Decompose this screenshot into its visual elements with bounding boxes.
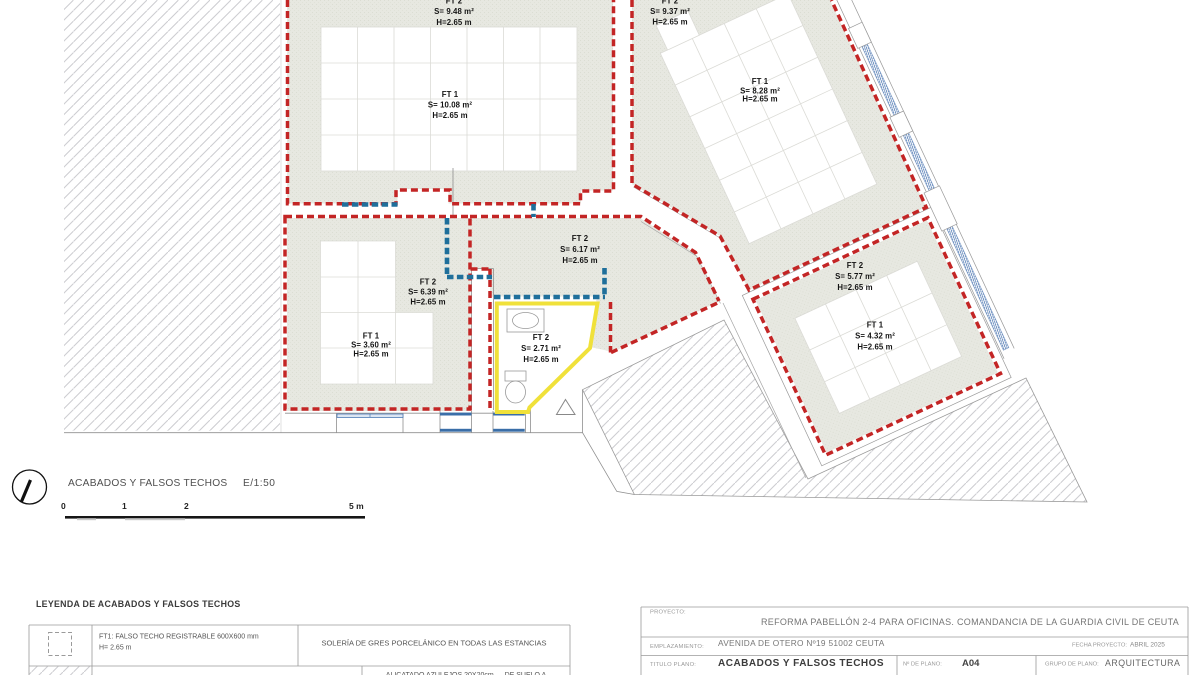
svg-text:H=2.65 m: H=2.65 m (436, 18, 471, 27)
svg-text:ARQUITECTURA: ARQUITECTURA (1105, 658, 1180, 668)
svg-text:A04: A04 (962, 658, 980, 669)
svg-text:FT 2: FT 2 (572, 234, 589, 243)
svg-text:H=2.65 m: H=2.65 m (857, 343, 892, 352)
svg-text:S= 9.37 m²: S= 9.37 m² (650, 7, 690, 16)
svg-text:AVENIDA DE OTERO Nº19 51002 C: AVENIDA DE OTERO Nº19 51002 CEUTA (718, 638, 885, 648)
svg-text:ACABADOS Y FALSOS TECHOS: ACABADOS Y FALSOS TECHOS (68, 478, 227, 489)
svg-text:FECHA PROYECTO:: FECHA PROYECTO: (1072, 643, 1127, 649)
svg-text:S= 2.71 m²: S= 2.71 m² (521, 344, 561, 353)
svg-text:FT 2: FT 2 (533, 333, 550, 342)
svg-text:H=2.65 m: H=2.65 m (410, 298, 445, 307)
svg-text:S= 6.39 m²: S= 6.39 m² (408, 288, 448, 297)
svg-text:2: 2 (184, 501, 189, 511)
svg-text:1: 1 (122, 501, 127, 511)
svg-text:FT 2: FT 2 (847, 261, 864, 270)
svg-text:S= 10.08 m²: S= 10.08 m² (428, 101, 473, 110)
svg-text:FT1: FALSO TECHO REGISTRABLE 6: FT1: FALSO TECHO REGISTRABLE 600X600 mm (99, 634, 259, 641)
svg-text:S= 6.17 m²: S= 6.17 m² (560, 245, 600, 254)
svg-text:S= 9.48 m²: S= 9.48 m² (434, 7, 474, 16)
svg-text:H= 2.65 m: H= 2.65 m (99, 645, 132, 652)
svg-text:REFORMA PABELLÓN 2-4 PARA OFIC: REFORMA PABELLÓN 2-4 PARA OFICINAS. COMA… (761, 617, 1179, 627)
svg-text:S= 3.60 m²: S= 3.60 m² (351, 341, 391, 350)
svg-text:ACABADOS Y FALSOS TECHOS: ACABADOS Y FALSOS TECHOS (718, 658, 884, 669)
svg-text:H=2.65 m: H=2.65 m (353, 350, 388, 359)
svg-text:FT 1: FT 1 (867, 321, 884, 330)
svg-text:H=2.65 m: H=2.65 m (523, 355, 558, 364)
svg-text:SOLERÍA DE GRES PORCELÁNICO EN: SOLERÍA DE GRES PORCELÁNICO EN TODAS LAS… (321, 639, 546, 648)
svg-text:S= 5.77 m²: S= 5.77 m² (835, 272, 875, 281)
svg-text:S= 4.32 m²: S= 4.32 m² (855, 332, 895, 341)
svg-text:GRUPO DE PLANO:: GRUPO DE PLANO: (1045, 662, 1099, 668)
svg-text:FT 1: FT 1 (442, 90, 459, 99)
svg-text:H=2.65 m: H=2.65 m (652, 18, 687, 27)
svg-text:H=2.65 m: H=2.65 m (562, 256, 597, 265)
svg-text:H=2.65 m: H=2.65 m (837, 283, 872, 292)
svg-text:H=2.65 m: H=2.65 m (432, 111, 467, 120)
svg-text:5 m: 5 m (349, 501, 364, 511)
svg-text:FT 2: FT 2 (420, 278, 437, 287)
svg-text:E/1:50: E/1:50 (243, 478, 275, 489)
svg-text:TITULO PLANO:: TITULO PLANO: (650, 662, 696, 668)
svg-text:EMPLAZAMIENTO:: EMPLAZAMIENTO: (650, 644, 704, 650)
svg-text:FT 1: FT 1 (363, 332, 380, 341)
svg-text:H=2.65 m: H=2.65 m (742, 95, 777, 104)
svg-text:FT 1: FT 1 (752, 77, 769, 86)
svg-text:LEYENDA DE ACABADOS Y FALSOS T: LEYENDA DE ACABADOS Y FALSOS TECHOS (36, 599, 241, 609)
svg-text:PROYECTO:: PROYECTO: (650, 610, 686, 616)
svg-text:ABRIL 2025: ABRIL 2025 (1130, 642, 1165, 649)
svg-text:Nº DE PLANO:: Nº DE PLANO: (903, 661, 942, 668)
svg-text:FT 2: FT 2 (662, 0, 679, 6)
svg-text:FT 2: FT 2 (446, 0, 463, 6)
svg-text:0: 0 (61, 501, 66, 511)
